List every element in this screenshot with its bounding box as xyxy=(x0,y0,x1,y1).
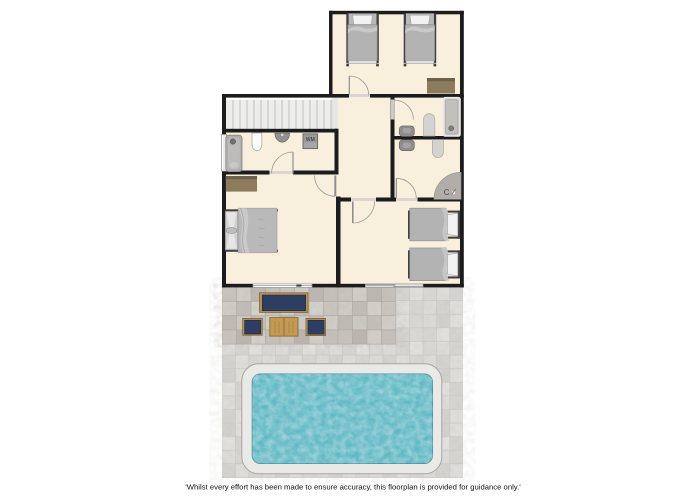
svg-text:'Whilst every effort has been: 'Whilst every effort has been made to en… xyxy=(185,483,521,492)
svg-text:WM: WM xyxy=(306,137,315,143)
svg-text:C: C xyxy=(444,188,450,197)
